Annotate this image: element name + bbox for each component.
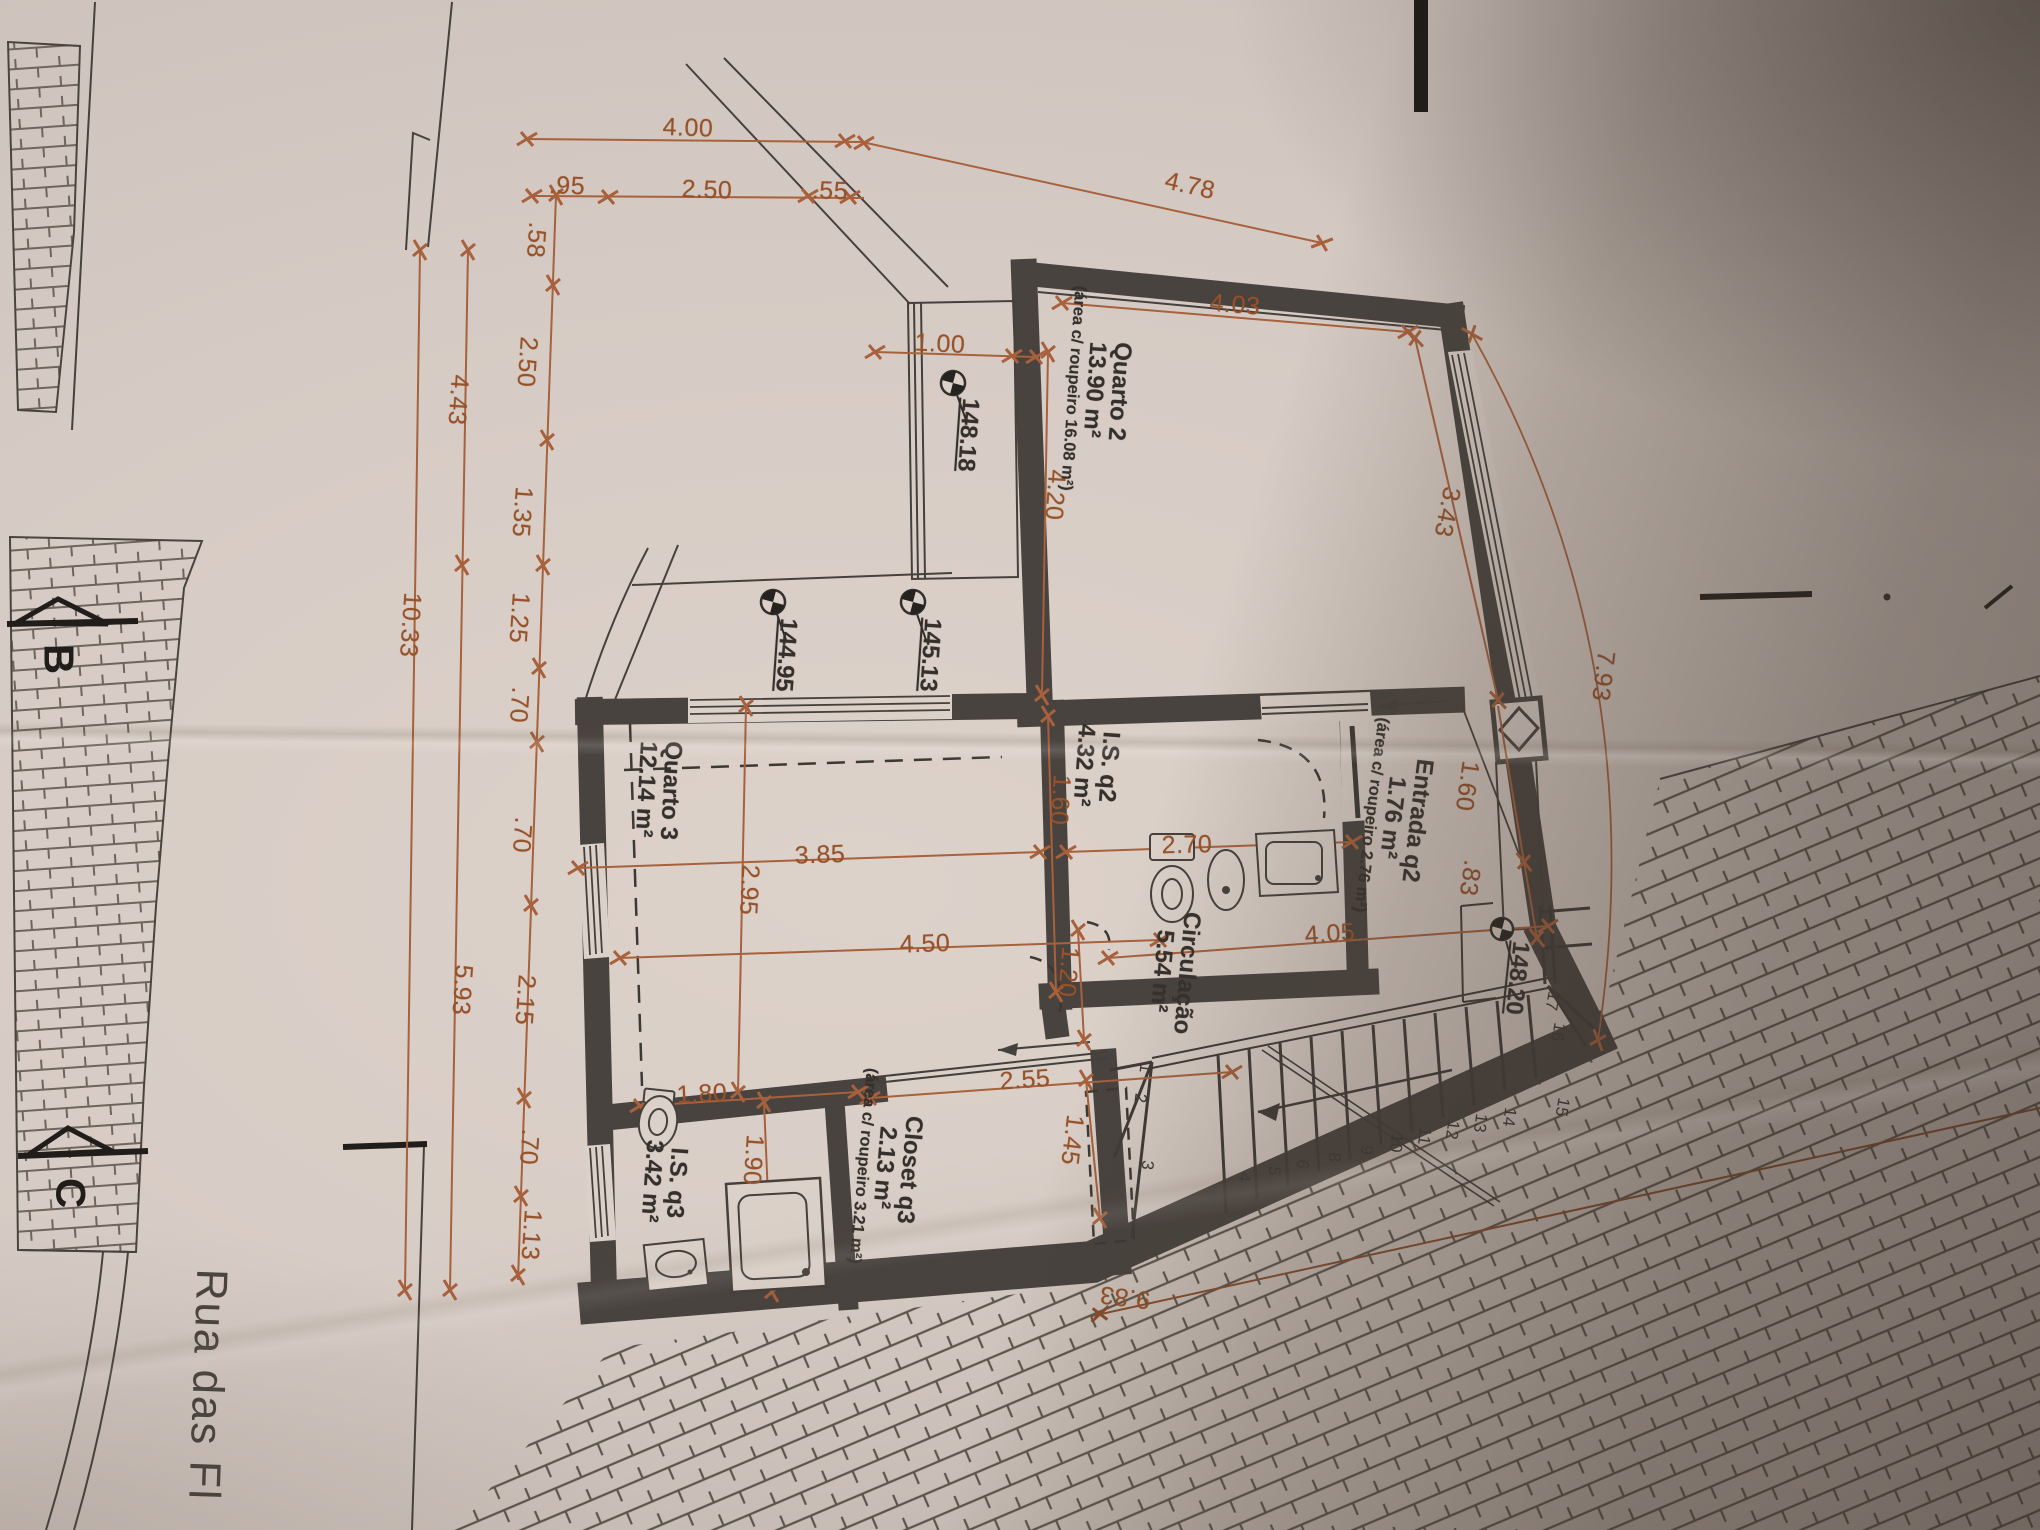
dim-2-15: 2.15 <box>510 974 540 1026</box>
room-label-entrada-q2: Entrada q21.76 m²(área c/ roupeiro 2.76 … <box>1350 716 1442 919</box>
stair-step-1: 1 <box>1135 1062 1154 1074</box>
street-name: Rua das Fl <box>180 1268 235 1502</box>
dim-2-55: 2.55 <box>999 1065 1051 1095</box>
stair-step-16: 16 <box>1547 1021 1568 1043</box>
dim-1-13: 1.13 <box>516 1209 546 1261</box>
elevation-144-95: 144.95 <box>771 617 801 692</box>
dim-2-50-top: 2.50 <box>681 176 733 204</box>
room-label-circulacao: Circulação5.54 m² <box>1143 909 1204 1036</box>
dim-4-43: 4.43 <box>443 374 473 426</box>
dim-83: .83 <box>1454 858 1485 898</box>
dim-2-50-left: 2.50 <box>512 336 542 388</box>
elevation-145-13: 145.13 <box>915 617 945 692</box>
stair-step-5: 5 <box>1264 1165 1283 1177</box>
section-letter-b: B <box>36 644 81 674</box>
photo-of-floor-plan: 4.00.952.50.554.78.582.501.351.25.70.702… <box>0 0 2040 1530</box>
stair-step-3: 3 <box>1137 1159 1156 1171</box>
section-letter-c: C <box>48 1178 93 1208</box>
stair-step-14: 14 <box>1499 1107 1519 1128</box>
dim-4-00: 4.00 <box>662 114 714 142</box>
dim-1-35: 1.35 <box>507 486 537 538</box>
stair-step-10: 10 <box>1386 1133 1406 1154</box>
room-label-closet-q3: Closet q32.13 m²(área c/ roupeiro 3.21 m… <box>845 1067 930 1268</box>
stair-step-2: 2 <box>1130 1092 1149 1104</box>
dim-3-43: 3.43 <box>1429 485 1465 540</box>
room-label-quarto3: Quarto 312.14 m² <box>630 739 686 840</box>
dim-1-45: 1.45 <box>1056 1113 1088 1167</box>
dim-9-83: 9.83 <box>1098 1281 1152 1313</box>
dim-1-80: 1.80 <box>676 1079 728 1108</box>
dim-1-00: 1.00 <box>914 329 966 358</box>
stair-step-9: 9 <box>1356 1144 1375 1156</box>
dim-4-78: 4.78 <box>1162 167 1217 204</box>
stair-step-4: 4 <box>1234 1171 1253 1183</box>
dim-1-60-right: 1.60 <box>1450 759 1483 813</box>
dim-4-50: 4.50 <box>899 930 951 958</box>
dim-7-93: 7.93 <box>1587 649 1619 703</box>
room-label-is-q2: I.S. q24.32 m² <box>1068 723 1125 809</box>
dim-95: .95 <box>548 172 585 200</box>
dim-70-a: .70 <box>505 686 534 724</box>
dim-1-20: 1.20 <box>1053 946 1084 999</box>
room-label-quarto2: Quarto 213.90 m²(área c/ roupeiro 16.08 … <box>1057 285 1140 495</box>
stair-step-13: 13 <box>1470 1113 1490 1134</box>
dim-70-c: .70 <box>515 1128 544 1166</box>
stair-step-6: 6 <box>1292 1158 1311 1170</box>
dim-2-70: 2.70 <box>1161 831 1212 858</box>
dim-55: .55 <box>811 177 848 205</box>
dim-10-33: 10.33 <box>395 592 426 659</box>
text-labels-layer: 4.00.952.50.554.78.582.501.351.25.70.702… <box>0 0 2040 1530</box>
dim-5-93: 5.93 <box>447 964 477 1016</box>
dim-58: .58 <box>522 221 551 259</box>
dim-1-90: 1.90 <box>738 1134 768 1186</box>
room-label-is-q3: I.S. q33.42 m² <box>636 1139 693 1225</box>
elevation-148-18: 148.18 <box>953 397 983 472</box>
stair-step-12: 12 <box>1442 1120 1462 1141</box>
drawing-layer: 4.00.952.50.554.78.582.501.351.25.70.702… <box>0 0 2040 1530</box>
dim-70-b: .70 <box>508 816 537 854</box>
dim-1-25: 1.25 <box>504 592 534 644</box>
dim-4-03: 4.03 <box>1209 290 1262 321</box>
stair-step-15: 15 <box>1551 1096 1572 1118</box>
elevation-148-20: 148.20 <box>1501 940 1534 1016</box>
dim-2-95: 2.95 <box>734 864 763 916</box>
dim-3-85: 3.85 <box>794 841 846 869</box>
stair-step-8: 8 <box>1324 1151 1343 1163</box>
stair-step-17: 17 <box>1541 990 1562 1012</box>
stair-step-11: 11 <box>1414 1126 1434 1146</box>
dim-4-05: 4.05 <box>1304 919 1356 949</box>
